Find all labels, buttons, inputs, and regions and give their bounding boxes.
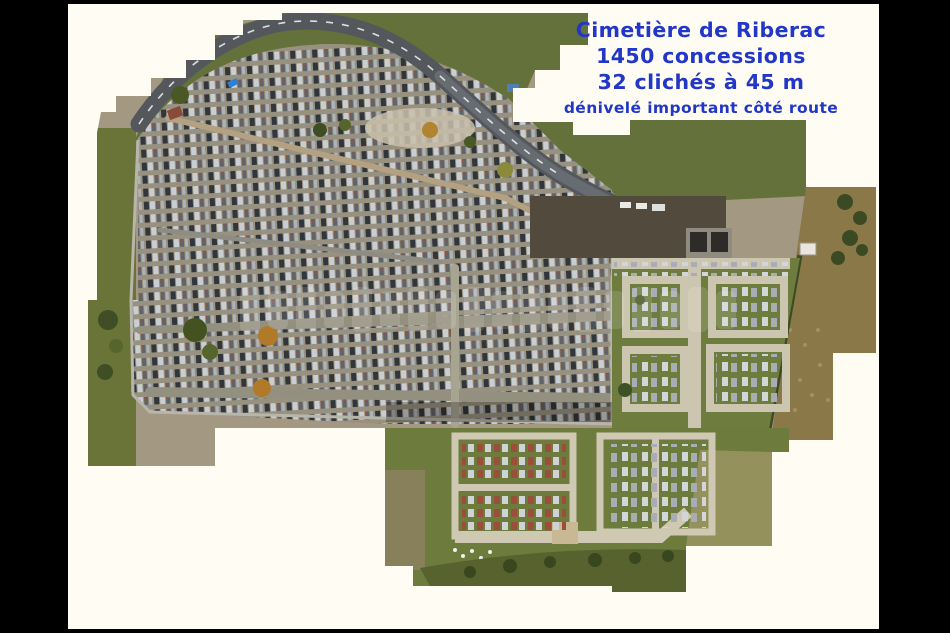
- annotation-flight-shots: 32 clichés à 45 m: [540, 69, 862, 95]
- annotation-title: Cimetière de Riberac: [540, 17, 862, 43]
- tomb-row-shadow: [386, 402, 612, 422]
- white-shed: [800, 243, 816, 255]
- ossuary-structure: [686, 228, 732, 258]
- annotation-concessions: 1450 concessions: [540, 43, 862, 69]
- left-grass-strip: [88, 128, 136, 466]
- bottom-extension-section: [385, 428, 789, 592]
- page: Cimetière de Riberac 1450 concessions 32…: [0, 0, 950, 633]
- annotation-slope-note: dénivelé important côté route: [540, 97, 862, 120]
- dirt-clearing: [365, 108, 475, 148]
- annotation-block: Cimetière de Riberac 1450 concessions 32…: [540, 17, 862, 120]
